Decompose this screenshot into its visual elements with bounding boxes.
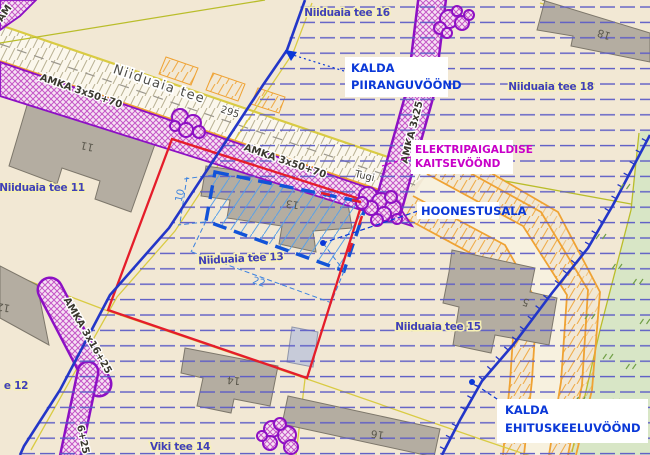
callout-point-marker-icon (469, 379, 475, 385)
callout-text: KALDA (505, 403, 549, 417)
callout-text: KALDA (351, 61, 395, 75)
callout-point-marker-icon (320, 240, 326, 246)
parcel-label-niiduaia-tee-16: Niiduaia tee 16 (304, 7, 389, 19)
callout-text: KAITSEVÖÖND (415, 156, 501, 170)
building-number-12: 12 (0, 300, 11, 314)
parcel-label-niiduaia-tee-18: Niiduaia tee 18 (508, 81, 593, 93)
parcel-label-niiduaia-tee-12: e 12 (4, 380, 28, 392)
building-number-14: 14 (226, 373, 241, 386)
callout-text: EHITUSKEELUVÖÖND (505, 420, 641, 435)
building-number-13: 13 (285, 197, 300, 211)
building-number-16: 16 (370, 427, 385, 441)
detail-plan-map[interactable]: Niiduaia tee 16Niiduaia tee 18Niiduaia t… (0, 0, 650, 455)
parcel-label-niiduaia-tee-15: Niiduaia tee 15 (395, 321, 480, 333)
callout-text: ELEKTRIPAIGALDISE (415, 144, 533, 156)
parcel-label-niiduaia-tee-11: Niiduaia tee 11 (0, 182, 85, 194)
callout-text: PIIRANGUVÖÖND (351, 77, 462, 92)
callout-text: HOONESTUSALA (421, 204, 527, 218)
parcel-label-viki-tee-14: Viki tee 14 (150, 441, 210, 453)
